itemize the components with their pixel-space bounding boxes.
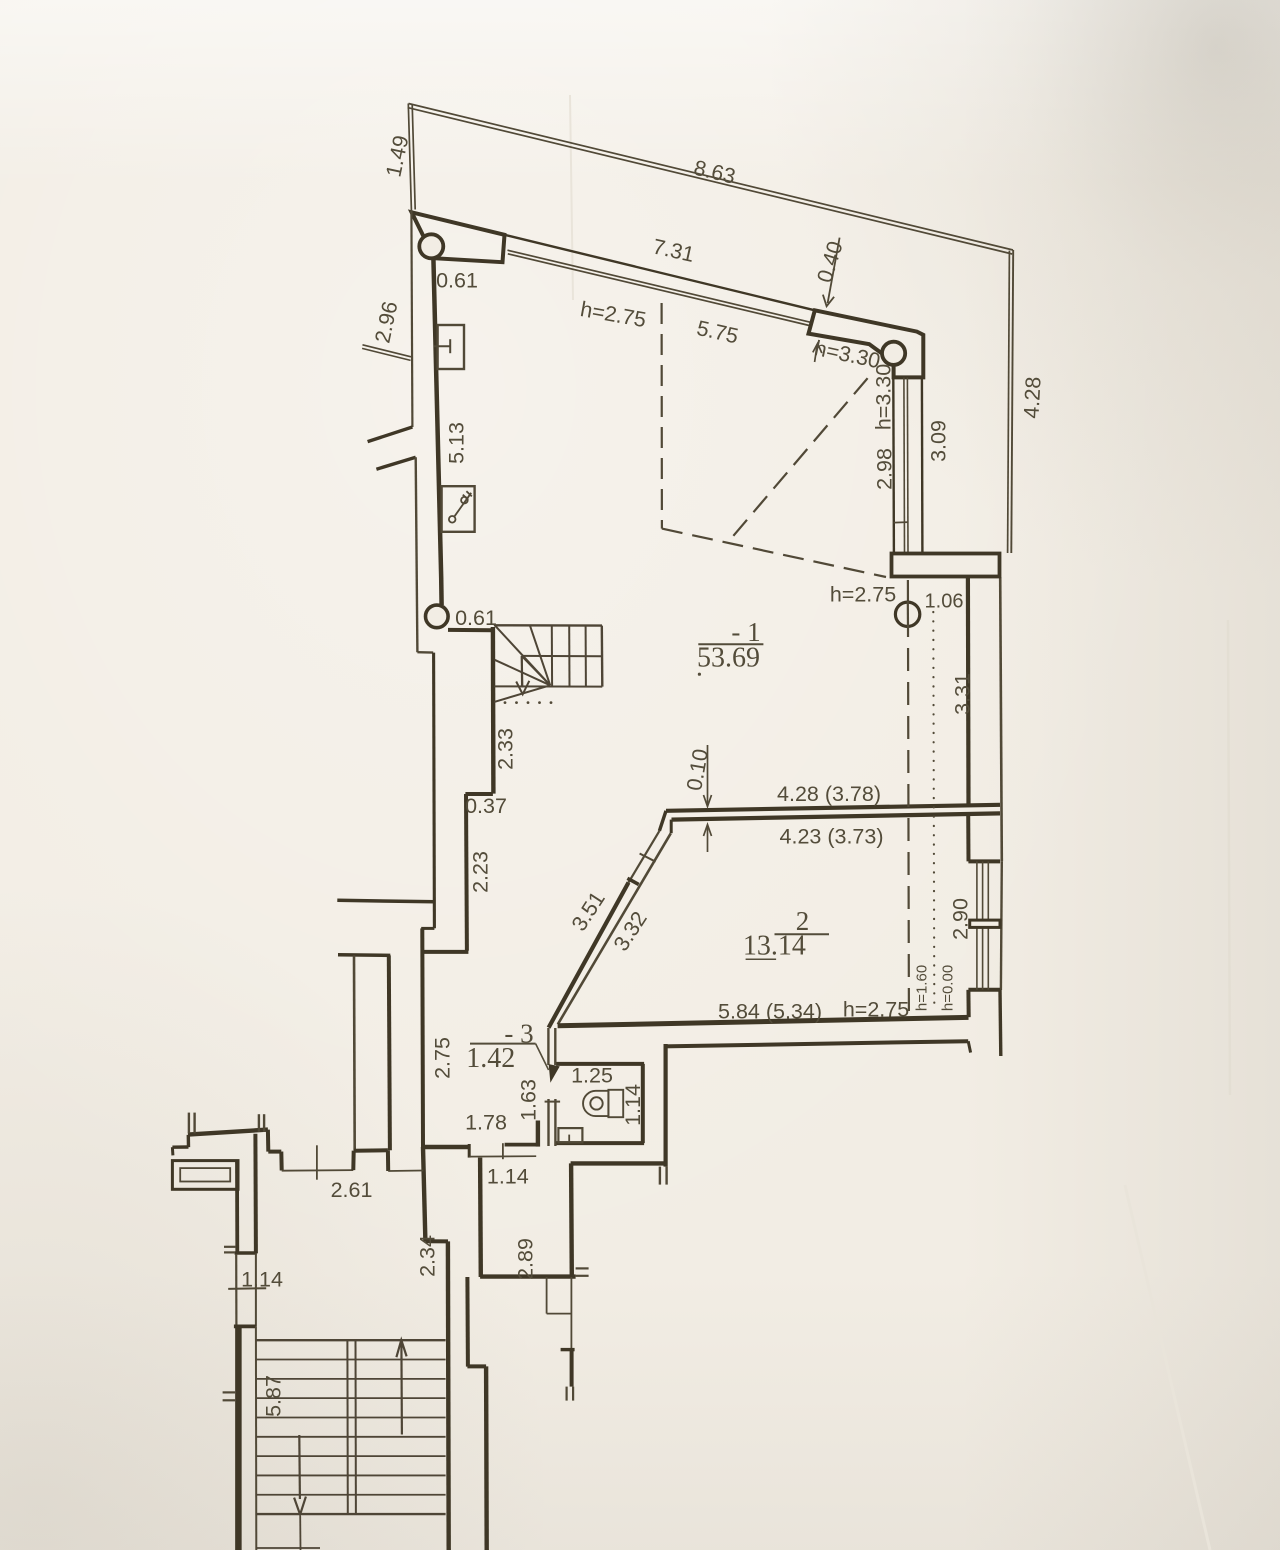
svg-text:h=3.30: h=3.30 <box>872 364 896 430</box>
svg-text:h=0.00: h=0.00 <box>940 965 957 1011</box>
svg-text:2.61: 2.61 <box>331 1178 373 1202</box>
svg-text:3.31: 3.31 <box>951 673 975 715</box>
svg-text:0.61: 0.61 <box>436 269 478 293</box>
svg-text:3.09: 3.09 <box>927 420 951 462</box>
svg-text:1.06: 1.06 <box>925 591 964 613</box>
svg-text:1.63: 1.63 <box>517 1079 541 1121</box>
svg-text:5.87: 5.87 <box>262 1375 286 1417</box>
svg-text:h=2.75: h=2.75 <box>830 583 896 607</box>
svg-text:2.34: 2.34 <box>416 1235 440 1277</box>
svg-text:0.37: 0.37 <box>465 794 507 818</box>
svg-text:13.14: 13.14 <box>743 930 806 961</box>
svg-text:4.23 (3.73): 4.23 (3.73) <box>780 825 884 849</box>
svg-text:4.28 (3.78): 4.28 (3.78) <box>777 782 881 806</box>
svg-text:2.75: 2.75 <box>431 1037 455 1079</box>
svg-text:1.14: 1.14 <box>621 1084 645 1126</box>
svg-text:1.42: 1.42 <box>466 1043 515 1074</box>
svg-text:2.23: 2.23 <box>469 851 493 893</box>
svg-text:53.69: 53.69 <box>697 643 760 674</box>
svg-text:1.14: 1.14 <box>241 1268 283 1292</box>
svg-text:4.28: 4.28 <box>1019 376 1045 419</box>
svg-text:2.89: 2.89 <box>514 1238 538 1280</box>
svg-text:5.13: 5.13 <box>445 422 469 464</box>
svg-text:h=1.60: h=1.60 <box>914 965 931 1011</box>
svg-text:1.78: 1.78 <box>465 1111 507 1135</box>
svg-text:h=2.75: h=2.75 <box>843 998 909 1022</box>
svg-text:0.61: 0.61 <box>455 606 497 630</box>
svg-text:1.25: 1.25 <box>571 1064 613 1088</box>
svg-text:2.33: 2.33 <box>493 728 517 770</box>
svg-text:5.84 (5.34): 5.84 (5.34) <box>718 1000 822 1024</box>
svg-text:2.98: 2.98 <box>873 448 897 490</box>
svg-text:2.90: 2.90 <box>949 898 973 940</box>
svg-text:1.14: 1.14 <box>487 1165 529 1189</box>
